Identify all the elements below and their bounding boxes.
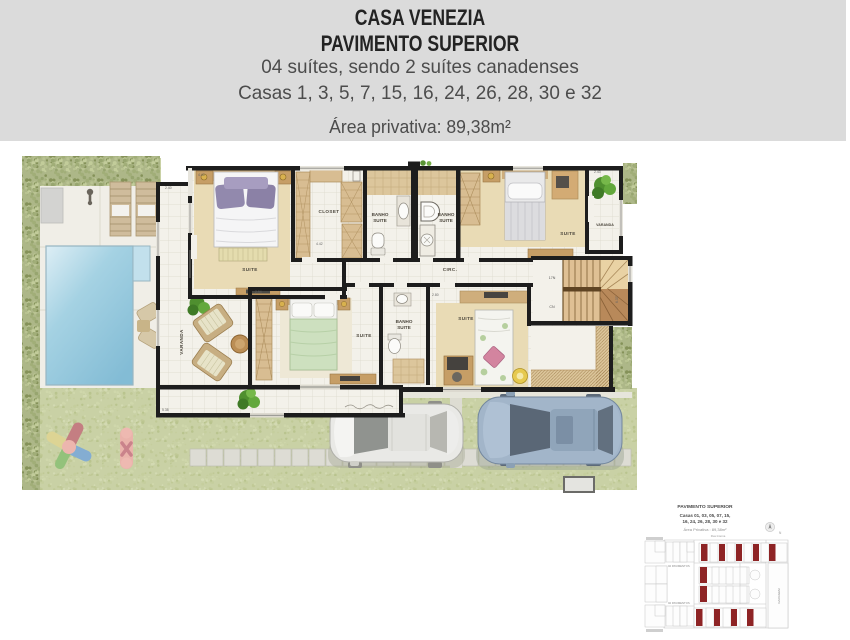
svg-text:CIRC.: CIRC. <box>443 267 458 272</box>
svg-text:CN: CN <box>549 305 555 309</box>
svg-text:BANHO: BANHO <box>438 212 455 217</box>
svg-text:GARAGEM: GARAGEM <box>777 588 781 604</box>
svg-text:6.37: 6.37 <box>615 296 619 303</box>
svg-text:4.40: 4.40 <box>198 173 205 177</box>
svg-text:BANHO: BANHO <box>396 319 413 324</box>
svg-text:SUITE: SUITE <box>373 218 387 223</box>
svg-text:N: N <box>779 531 782 535</box>
svg-text:SUITE: SUITE <box>356 333 372 338</box>
svg-text:SUITE: SUITE <box>439 218 453 223</box>
svg-text:SUITE: SUITE <box>397 325 411 330</box>
svg-text:CLOSET: CLOSET <box>318 209 339 214</box>
svg-text:2.43: 2.43 <box>594 170 601 174</box>
svg-text:4.42: 4.42 <box>316 242 323 246</box>
svg-text:VARANDA: VARANDA <box>179 329 184 355</box>
svg-text:2.40: 2.40 <box>165 186 172 190</box>
svg-text:SUITE: SUITE <box>458 316 474 321</box>
svg-text:PAVIMENTO SUPERIOR: PAVIMENTO SUPERIOR <box>677 504 733 510</box>
svg-text:17N: 17N <box>549 276 556 280</box>
svg-text:Casas 01, 03, 05, 07, 15,: Casas 01, 03, 05, 07, 15, <box>680 513 731 518</box>
svg-text:5.38: 5.38 <box>162 408 169 412</box>
svg-text:02 PAVIMENTOS: 02 PAVIMENTOS <box>668 564 690 568</box>
svg-text:2.94: 2.94 <box>255 290 262 294</box>
svg-text:Área Privativa : 89,38m²: Área Privativa : 89,38m² <box>684 527 728 532</box>
svg-text:VARANDA: VARANDA <box>596 223 614 227</box>
svg-text:SUITE: SUITE <box>560 231 576 236</box>
svg-text:2.80: 2.80 <box>432 293 439 297</box>
svg-text:02 PAVIMENTOS: 02 PAVIMENTOS <box>668 601 690 605</box>
svg-text:SUITE: SUITE <box>242 267 258 272</box>
svg-text:Rua Interna: Rua Interna <box>711 534 726 538</box>
svg-text:16, 24, 26, 28, 30 e 32: 16, 24, 26, 28, 30 e 32 <box>682 519 728 524</box>
svg-text:BANHO: BANHO <box>372 212 389 217</box>
